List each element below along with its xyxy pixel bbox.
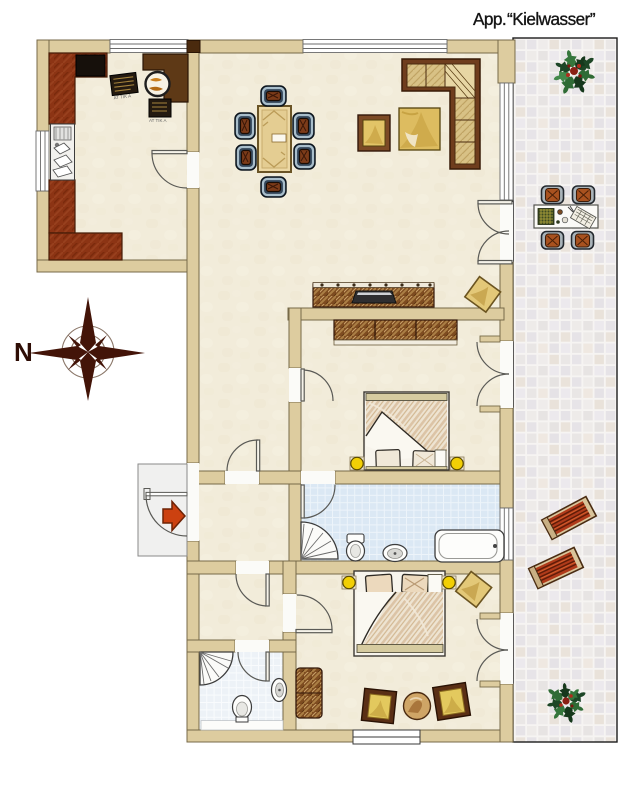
svg-text:App. “Kielwasser”: App. “Kielwasser” xyxy=(473,9,596,29)
svg-text:AT TIK A: AT TIK A xyxy=(149,118,167,123)
svg-text:N: N xyxy=(14,337,33,367)
